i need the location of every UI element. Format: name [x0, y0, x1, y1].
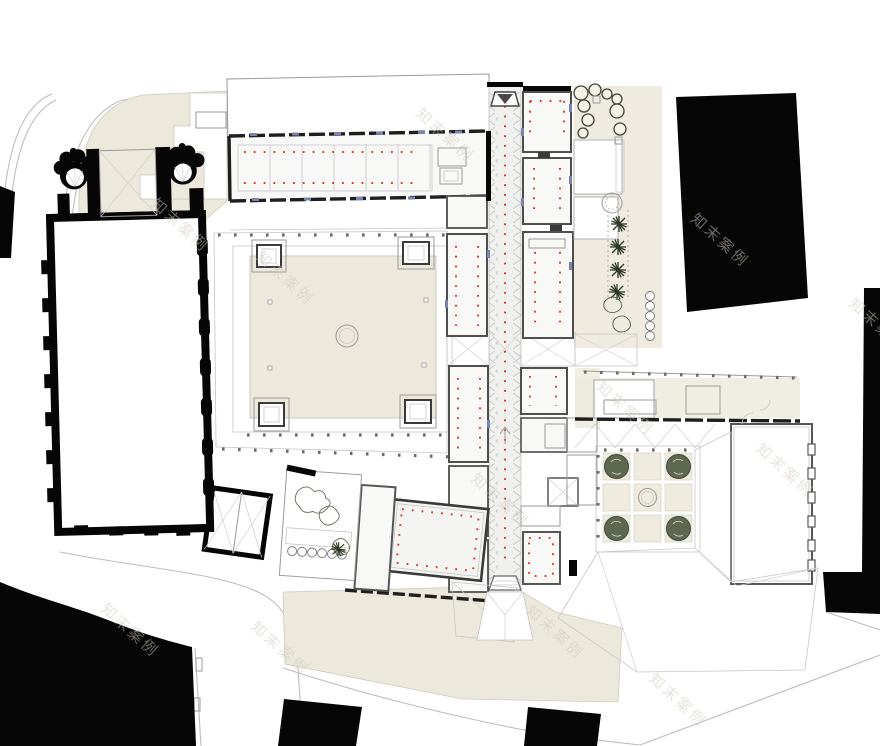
- church-annex: [204, 488, 270, 557]
- great-red-room: [386, 499, 488, 581]
- corridor-north-cap: [487, 82, 523, 87]
- sloped-roof-strip: [695, 432, 731, 582]
- cloister-courtyard: [214, 231, 462, 457]
- small-red-room: [523, 532, 560, 584]
- site-plan-page: 知末案例 知末案例 知末案例 知末案例 知末案例 知末案例 知末案例 知末案例 …: [0, 0, 880, 746]
- site-plan-drawing: 知末案例 知末案例 知末案例 知末案例 知末案例 知末案例 知末案例 知末案例 …: [0, 0, 880, 746]
- garden-circle-column: [646, 292, 655, 341]
- context-building-southwest: [0, 582, 196, 746]
- context-sliver-west: [0, 186, 15, 258]
- parterre-tree-courtyard: [596, 446, 700, 552]
- se-main-wall: [575, 419, 800, 421]
- context-building-south-a: [278, 699, 362, 746]
- church-nave: [50, 214, 210, 532]
- gallery-end-wall: [486, 131, 491, 201]
- garden-shrubs: [291, 486, 353, 555]
- door-jamb: [550, 225, 562, 231]
- context-building-northeast: [676, 93, 808, 312]
- terrace-fence-dots: [584, 372, 796, 378]
- watermark-text: 知末案例: [645, 670, 711, 732]
- west-annex-room: [354, 485, 395, 591]
- southeast-hall: [731, 413, 815, 584]
- context-building-south-b: [524, 707, 601, 746]
- context-building-east: [823, 288, 880, 614]
- door-jamb: [538, 152, 550, 158]
- east-gallery-rooms: [521, 86, 573, 338]
- chapter-garden: [279, 468, 361, 581]
